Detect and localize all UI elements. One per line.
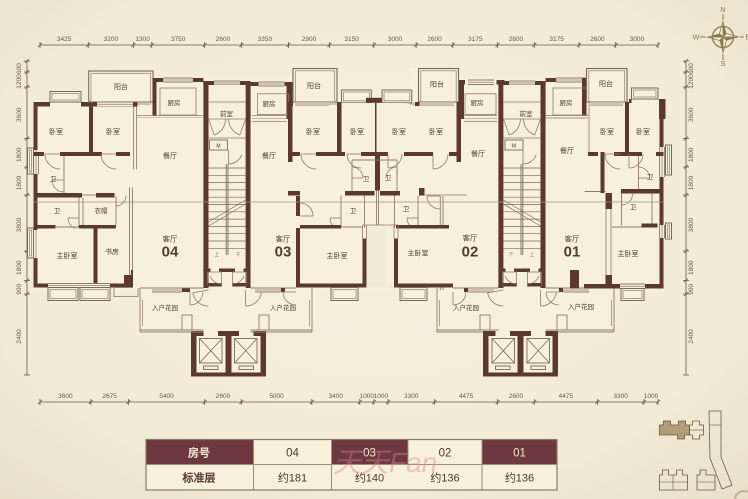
svg-text:4475: 4475 (459, 393, 474, 400)
svg-text:客厅: 客厅 (565, 234, 580, 244)
svg-text:约181: 约181 (278, 472, 307, 485)
svg-text:1800: 1800 (16, 147, 23, 162)
svg-text:02: 02 (439, 448, 452, 460)
svg-text:入户花园: 入户花园 (453, 303, 479, 312)
svg-text:1800: 1800 (16, 175, 23, 190)
svg-text:1800: 1800 (688, 147, 695, 162)
svg-text:1800: 1800 (688, 175, 695, 190)
svg-text:1800: 1800 (688, 260, 695, 275)
svg-text:2675: 2675 (102, 393, 117, 400)
svg-text:1000: 1000 (360, 393, 375, 400)
svg-text:2600: 2600 (427, 36, 442, 43)
svg-text:卧室: 卧室 (306, 127, 320, 136)
svg-text:S: S (720, 59, 725, 68)
svg-text:主卧室: 主卧室 (57, 251, 78, 260)
svg-text:餐厅: 餐厅 (560, 146, 574, 155)
svg-text:约136: 约136 (505, 472, 534, 485)
svg-text:600: 600 (688, 63, 695, 74)
svg-text:餐厅: 餐厅 (262, 151, 276, 160)
svg-text:W: W (692, 33, 700, 42)
svg-text:厨房: 厨房 (168, 98, 181, 107)
svg-text:1000: 1000 (374, 393, 389, 400)
svg-text:900: 900 (688, 283, 695, 294)
svg-text:3300: 3300 (613, 393, 628, 400)
svg-text:卧室: 卧室 (49, 127, 63, 136)
svg-text:1200: 1200 (16, 74, 23, 89)
svg-text:主卧室: 主卧室 (408, 249, 429, 258)
svg-text:书房: 书房 (105, 247, 119, 256)
svg-text:上: 上 (530, 251, 535, 257)
svg-text:厨房: 厨房 (560, 98, 573, 107)
svg-text:阳台: 阳台 (599, 79, 613, 88)
svg-text:2600: 2600 (509, 36, 524, 43)
svg-text:3800: 3800 (688, 217, 695, 232)
svg-text:3600: 3600 (16, 107, 23, 122)
svg-text:3600: 3600 (58, 393, 73, 400)
svg-text:卧室: 卧室 (600, 127, 614, 136)
svg-text:2600: 2600 (509, 393, 524, 400)
svg-text:天天Fan: 天天Fan (333, 447, 437, 478)
svg-text:3175: 3175 (468, 36, 483, 43)
svg-text:3350: 3350 (258, 36, 273, 43)
svg-text:2400: 2400 (16, 329, 23, 344)
svg-text:2600: 2600 (216, 393, 231, 400)
svg-text:卫: 卫 (50, 175, 57, 183)
svg-text:M: M (512, 144, 516, 150)
svg-text:5000: 5000 (269, 393, 284, 400)
svg-text:02: 02 (462, 244, 479, 261)
svg-text:客厅: 客厅 (276, 234, 291, 244)
svg-text:餐厅: 餐厅 (163, 151, 177, 160)
svg-text:标准层: 标准层 (182, 471, 216, 485)
svg-text:入户花园: 入户花园 (568, 302, 594, 311)
svg-text:1300: 1300 (135, 36, 150, 43)
svg-text:卧室: 卧室 (636, 127, 650, 136)
svg-text:卫: 卫 (54, 207, 61, 215)
svg-text:餐厅: 餐厅 (471, 149, 485, 158)
svg-text:900: 900 (16, 283, 23, 294)
svg-text:主卧室: 主卧室 (618, 249, 639, 258)
svg-text:3175: 3175 (549, 36, 564, 43)
svg-text:客厅: 客厅 (463, 233, 478, 243)
svg-text:卫: 卫 (647, 173, 654, 181)
svg-text:2900: 2900 (302, 36, 317, 43)
svg-text:阳台: 阳台 (307, 81, 321, 90)
svg-text:主卧室: 主卧室 (327, 251, 348, 260)
svg-text:600: 600 (16, 63, 23, 74)
svg-text:3425: 3425 (57, 36, 72, 43)
svg-text:卫: 卫 (350, 207, 357, 215)
svg-text:3600: 3600 (688, 107, 695, 122)
svg-text:卧室: 卧室 (350, 127, 364, 136)
svg-text:阳台: 阳台 (430, 80, 444, 89)
svg-text:卧室: 卧室 (106, 127, 120, 136)
svg-text:03: 03 (275, 244, 292, 261)
svg-text:卫: 卫 (363, 175, 370, 183)
svg-text:04: 04 (162, 244, 179, 261)
svg-text:3750: 3750 (171, 36, 186, 43)
svg-text:1200: 1200 (688, 74, 695, 89)
svg-text:1800: 1800 (16, 260, 23, 275)
svg-text:阳台: 阳台 (114, 82, 128, 91)
svg-text:3000: 3000 (388, 36, 403, 43)
svg-text:前室: 前室 (220, 109, 234, 118)
svg-text:04: 04 (286, 448, 299, 460)
svg-text:上: 上 (215, 251, 220, 257)
svg-text:卧室: 卧室 (392, 127, 406, 136)
svg-text:N: N (720, 5, 725, 14)
svg-text:5400: 5400 (159, 393, 174, 400)
svg-text:房号: 房号 (188, 446, 210, 460)
svg-text:01: 01 (513, 448, 526, 460)
svg-text:1000: 1000 (644, 393, 659, 400)
svg-text:3400: 3400 (329, 393, 344, 400)
svg-text:客厅: 客厅 (163, 234, 178, 244)
svg-text:2600: 2600 (590, 36, 605, 43)
svg-text:2400: 2400 (688, 329, 695, 344)
svg-text:厨房: 厨房 (263, 99, 276, 108)
svg-text:卧室: 卧室 (429, 127, 443, 136)
svg-text:衣帽: 衣帽 (95, 206, 109, 215)
svg-text:3800: 3800 (16, 217, 23, 232)
svg-text:卫: 卫 (630, 204, 637, 212)
svg-text:01: 01 (564, 244, 581, 261)
svg-text:前室: 前室 (520, 109, 534, 118)
svg-text:厨房: 厨房 (471, 98, 484, 107)
svg-text:3000: 3000 (630, 36, 645, 43)
svg-text:2600: 2600 (216, 36, 231, 43)
svg-text:入户花园: 入户花园 (152, 303, 178, 312)
svg-text:3300: 3300 (404, 393, 419, 400)
svg-text:3150: 3150 (344, 36, 359, 43)
svg-text:M: M (216, 144, 220, 150)
svg-text:卫: 卫 (403, 205, 410, 213)
svg-text:4475: 4475 (559, 393, 574, 400)
svg-text:3200: 3200 (104, 36, 119, 43)
